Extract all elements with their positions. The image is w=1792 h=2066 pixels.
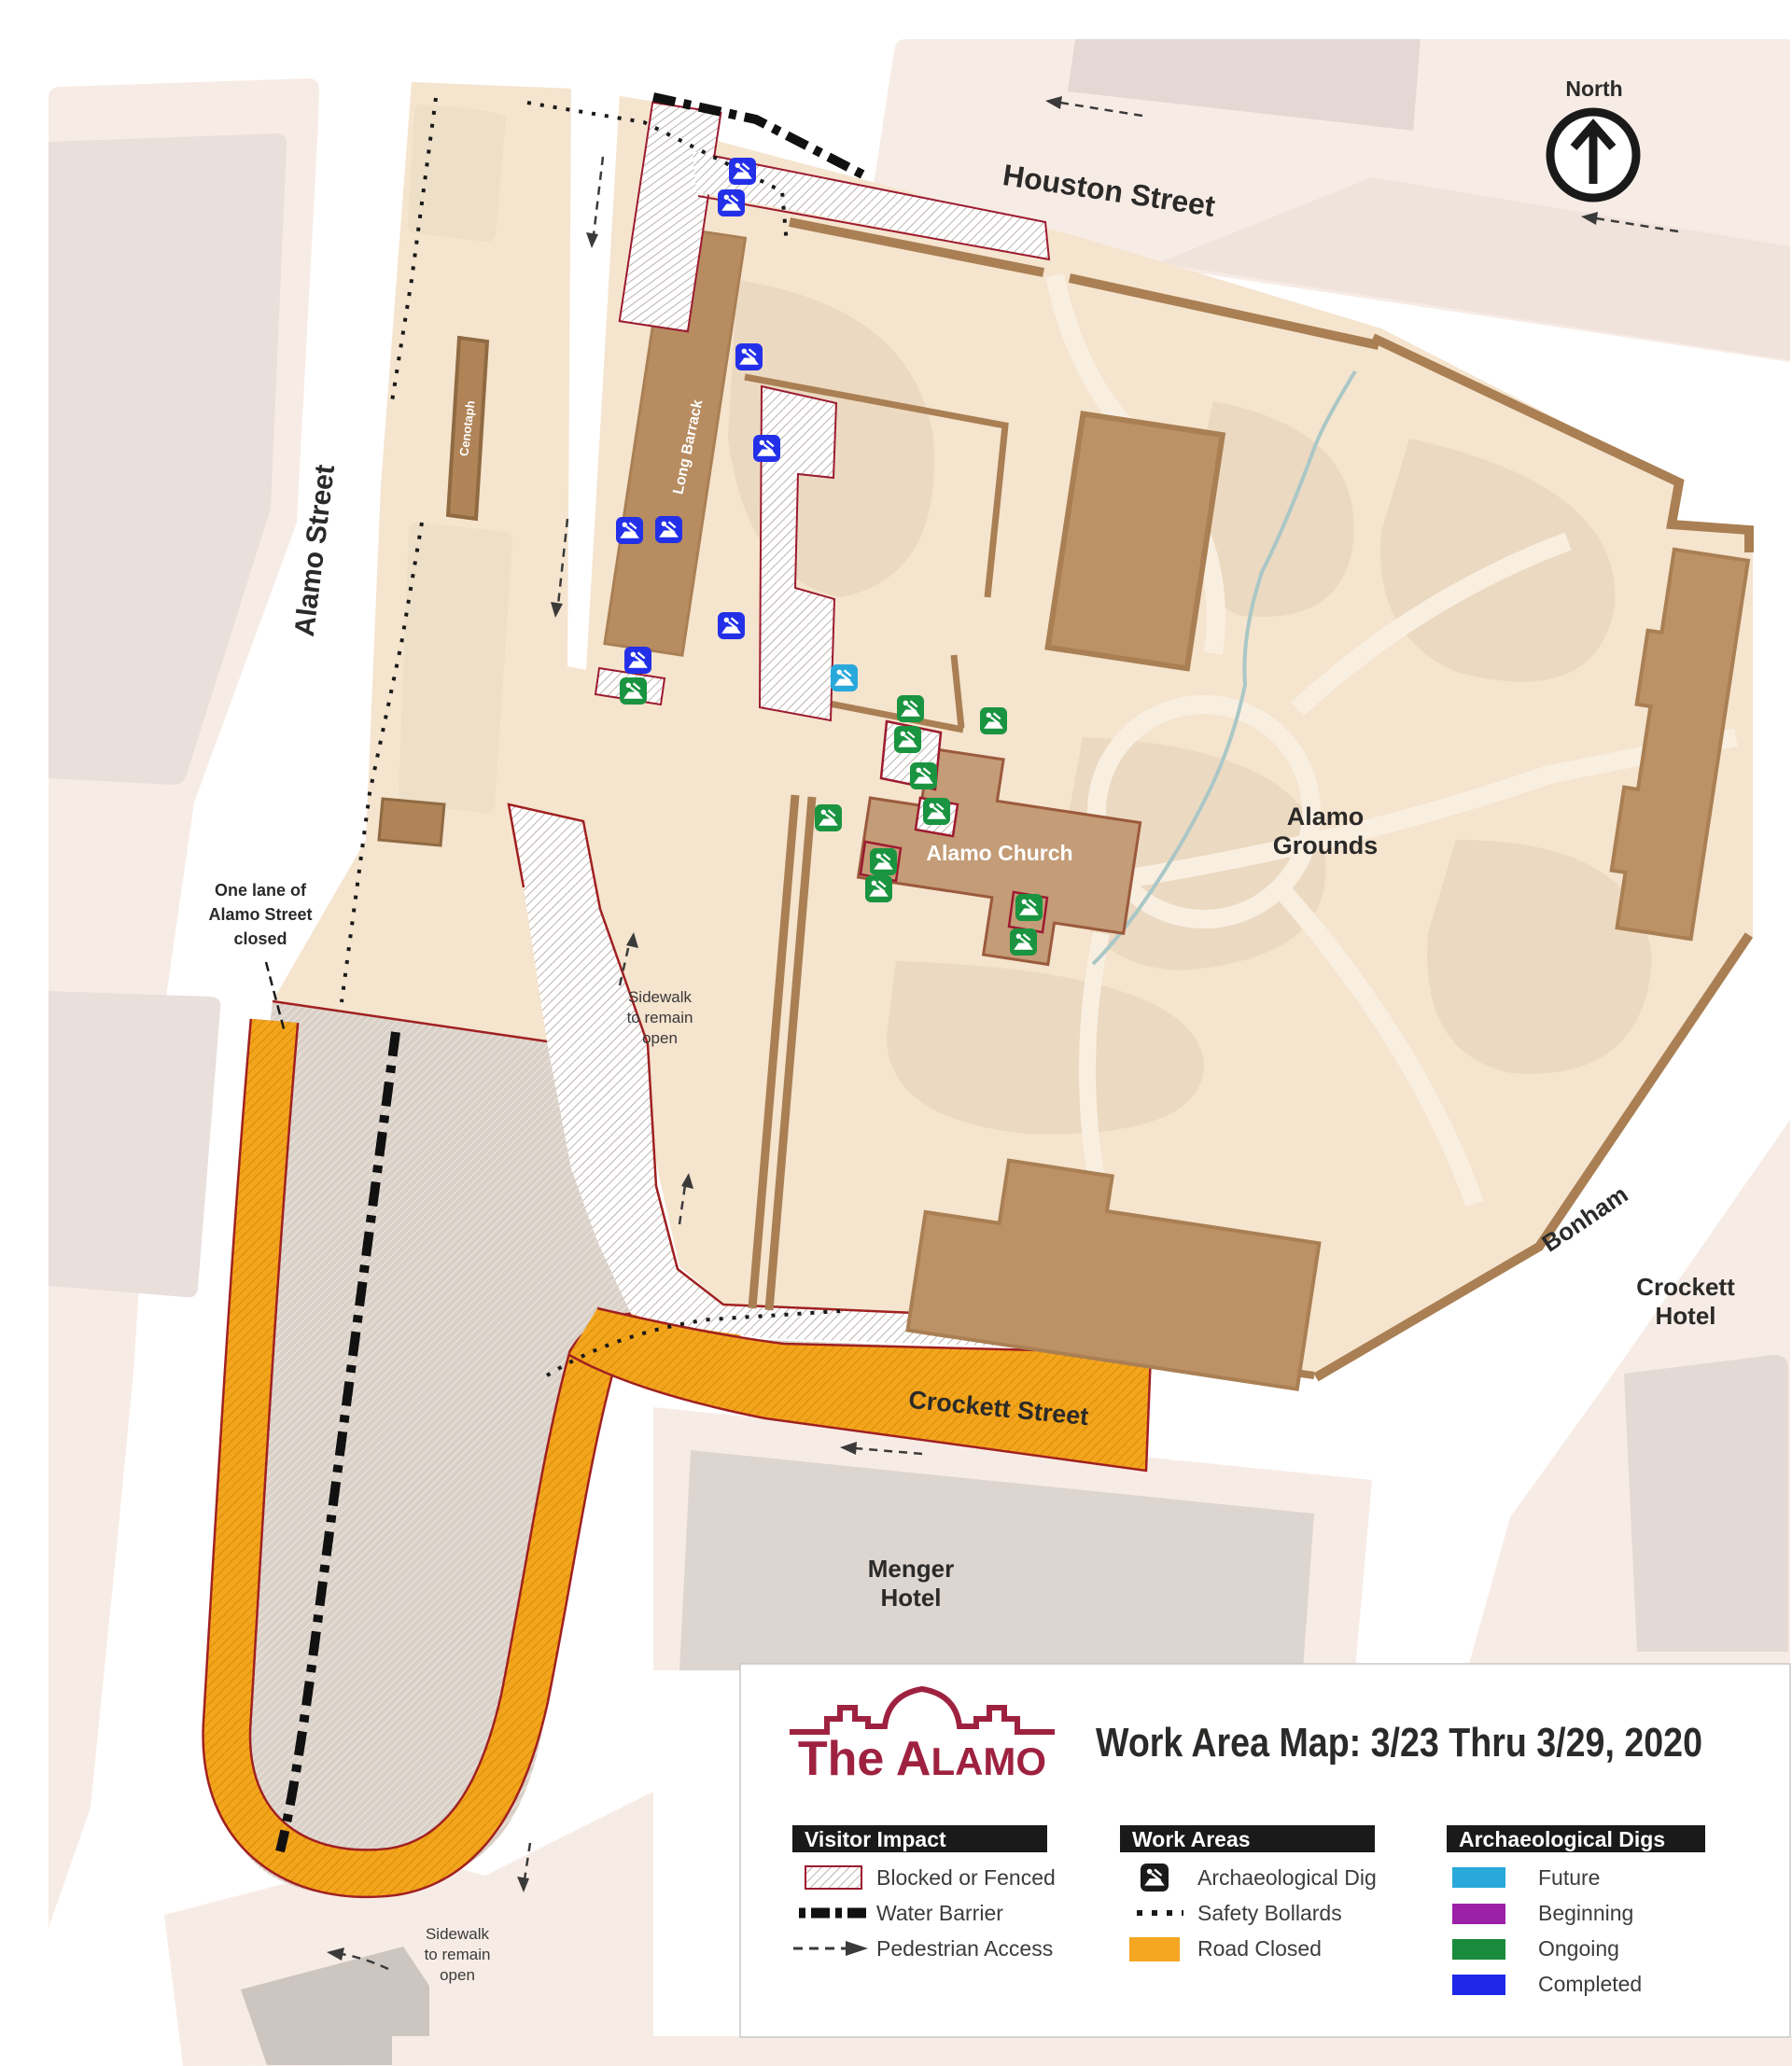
svg-text:Road Closed: Road Closed [1197, 1936, 1322, 1961]
svg-text:Water Barrier: Water Barrier [876, 1901, 1003, 1925]
svg-text:Grounds: Grounds [1273, 831, 1379, 859]
svg-text:Safety Bollards: Safety Bollards [1197, 1901, 1342, 1925]
svg-text:Hotel: Hotel [881, 1584, 942, 1612]
svg-text:Beginning: Beginning [1538, 1901, 1633, 1925]
svg-text:Ongoing: Ongoing [1538, 1936, 1619, 1961]
svg-text:to remain: to remain [425, 1946, 491, 1963]
svg-text:Crockett: Crockett [1636, 1273, 1735, 1301]
svg-text:open: open [642, 1029, 678, 1047]
svg-text:Work Area Map: 3/23 Thru 3/29,: Work Area Map: 3/23 Thru 3/29, 2020 [1096, 1720, 1702, 1766]
svg-text:Sidewalk: Sidewalk [426, 1925, 490, 1943]
svg-text:Hotel: Hotel [1656, 1302, 1716, 1330]
svg-text:Completed: Completed [1538, 1972, 1642, 1996]
svg-text:Visitor Impact: Visitor Impact [805, 1827, 946, 1851]
svg-text:The ALAMO: The ALAMO [798, 1732, 1046, 1786]
svg-text:Pedestrian Access: Pedestrian Access [876, 1936, 1053, 1961]
svg-text:Archaeological Dig: Archaeological Dig [1197, 1865, 1377, 1890]
svg-text:open: open [440, 1966, 475, 1984]
svg-text:Archaeological Digs: Archaeological Digs [1459, 1827, 1665, 1851]
svg-text:North: North [1565, 77, 1622, 101]
svg-text:Blocked or Fenced: Blocked or Fenced [876, 1865, 1056, 1890]
svg-text:Future: Future [1538, 1865, 1600, 1890]
svg-text:Menger: Menger [868, 1555, 954, 1583]
svg-text:One lane of: One lane of [215, 881, 307, 900]
svg-text:Alamo Church: Alamo Church [926, 841, 1072, 865]
svg-text:Alamo Street: Alamo Street [208, 905, 312, 924]
svg-text:Alamo: Alamo [1287, 803, 1365, 831]
svg-text:Work Areas: Work Areas [1132, 1827, 1251, 1851]
svg-text:Sidewalk: Sidewalk [628, 988, 693, 1006]
svg-text:to remain: to remain [627, 1009, 693, 1026]
svg-text:closed: closed [233, 929, 287, 948]
